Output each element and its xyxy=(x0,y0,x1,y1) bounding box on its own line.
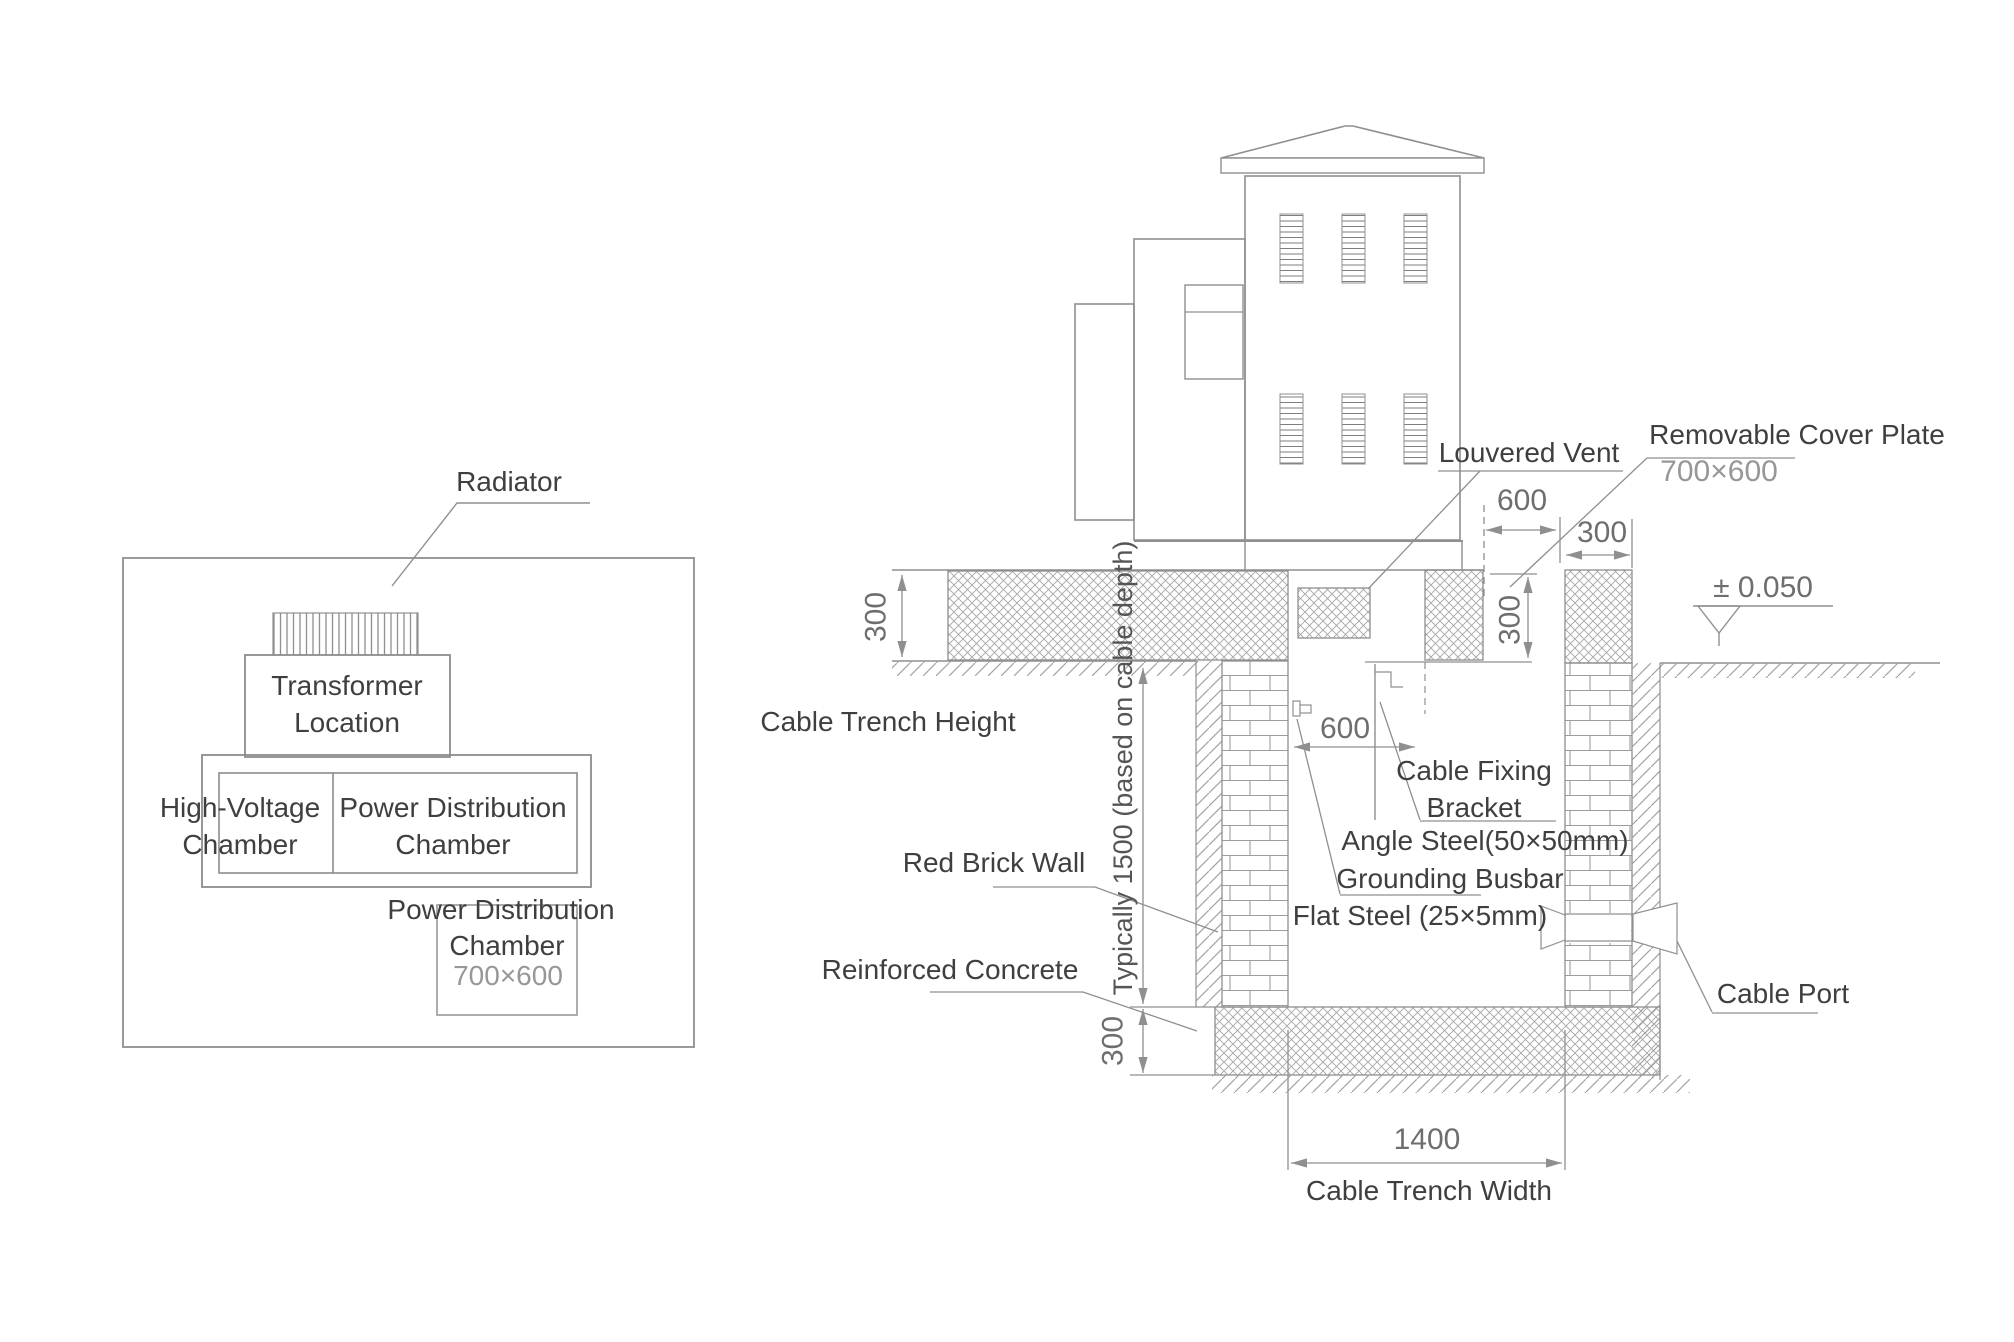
level-mark-value: ± 0.050 xyxy=(1713,572,1813,603)
cable-fixing-bracket-line2: Bracket xyxy=(1396,789,1552,826)
concrete-slab-mid xyxy=(1425,570,1483,660)
grounding-busbar-shape xyxy=(1293,701,1311,716)
dim-slab-300: 300 xyxy=(861,592,892,642)
concrete-leader xyxy=(930,992,1197,1031)
vent-louver xyxy=(1404,394,1427,464)
cabinet-roof xyxy=(1221,126,1484,158)
level-symbol xyxy=(1693,606,1833,646)
power-distribution-chamber-line2: Chamber xyxy=(339,826,566,863)
high-voltage-chamber-line2: Chamber xyxy=(160,826,320,863)
base-soil-hatch xyxy=(1212,1075,1690,1093)
power-distribution-chamber-label: Power Distribution Chamber xyxy=(339,789,566,863)
cable-trench-width-label: Cable Trench Width xyxy=(1306,1176,1552,1206)
plan-view xyxy=(123,503,694,1047)
brick-wall-left xyxy=(1222,661,1288,1007)
dim-base-300: 300 xyxy=(1098,1016,1129,1066)
grounding-busbar-label: Grounding Busbar xyxy=(1336,864,1563,894)
ground-hatch-right xyxy=(1660,663,1915,678)
transformer-location-line1: Transformer xyxy=(271,667,422,704)
radiator-fins xyxy=(273,613,418,657)
pd-chamber-below-line2: Chamber xyxy=(449,931,564,961)
dim-bracket-600: 600 xyxy=(1320,713,1370,744)
cabinet xyxy=(1075,126,1484,570)
dim-width-1400: 1400 xyxy=(1394,1124,1461,1155)
ground-hatch-left xyxy=(892,661,1196,676)
busbar-plate xyxy=(1293,701,1300,716)
red-brick-leader xyxy=(993,887,1218,932)
vent-louver xyxy=(1280,394,1303,464)
concrete-pier-right xyxy=(1565,570,1632,663)
flat-steel-label: Flat Steel (25×5mm) xyxy=(1293,901,1547,931)
pd-chamber-size-value: 700×600 xyxy=(453,961,563,991)
cabinet-eave xyxy=(1221,158,1484,173)
concrete-base xyxy=(1215,1007,1660,1075)
radiator-label: Radiator xyxy=(456,467,562,497)
power-distribution-chamber-line1: Power Distribution xyxy=(339,789,566,826)
soil-band-left xyxy=(1196,661,1222,1007)
louvered-vent-insert xyxy=(1298,588,1370,638)
dim-cover-600: 600 xyxy=(1497,485,1547,516)
louvered-vent-label: Louvered Vent xyxy=(1439,438,1620,468)
section-view xyxy=(892,126,1940,1170)
vent-louver xyxy=(1280,214,1303,283)
cable-fixing-bracket-label: Cable Fixing Bracket xyxy=(1396,752,1552,826)
cabinet-bushing-box xyxy=(1185,285,1243,379)
cabinet-left-box xyxy=(1075,304,1134,520)
leader-lines xyxy=(930,458,1818,1031)
dim-pier-300: 300 xyxy=(1577,517,1627,548)
depth-note-label: Typically 1500 (based on cable depth) xyxy=(1108,541,1138,996)
high-voltage-chamber-line1: High-Voltage xyxy=(160,789,320,826)
vent-louver xyxy=(1404,214,1427,283)
cable-port-label: Cable Port xyxy=(1717,979,1849,1009)
engineering-drawing-canvas: Radiator Transformer Location High-Volta… xyxy=(0,0,2014,1342)
vent-louver xyxy=(1342,394,1365,464)
radiator-leader xyxy=(392,503,590,586)
high-voltage-chamber-label: High-Voltage Chamber xyxy=(160,789,320,863)
cable-trench-height-label: Cable Trench Height xyxy=(760,707,1015,737)
transformer-location-label: Transformer Location xyxy=(271,667,422,741)
removable-cover-plate-label: Removable Cover Plate xyxy=(1649,420,1945,450)
reinforced-concrete-label: Reinforced Concrete xyxy=(822,955,1079,985)
dim-elev-300: 300 xyxy=(1495,595,1526,645)
cabinet-side-panel xyxy=(1134,239,1245,540)
ground xyxy=(892,661,1940,678)
transformer-location-line2: Location xyxy=(271,704,422,741)
busbar-bolt xyxy=(1300,705,1311,713)
cabinet-supports xyxy=(1245,541,1462,570)
angle-steel-label: Angle Steel(50×50mm) xyxy=(1341,826,1628,856)
removable-cover-plate-size: 700×600 xyxy=(1660,456,1778,487)
pd-chamber-below-line1: Power Distribution xyxy=(387,895,614,925)
red-brick-wall-label: Red Brick Wall xyxy=(903,848,1086,878)
cable-fixing-bracket-line1: Cable Fixing xyxy=(1396,752,1552,789)
bracket-step xyxy=(1375,672,1403,687)
vent-louver xyxy=(1342,214,1365,283)
